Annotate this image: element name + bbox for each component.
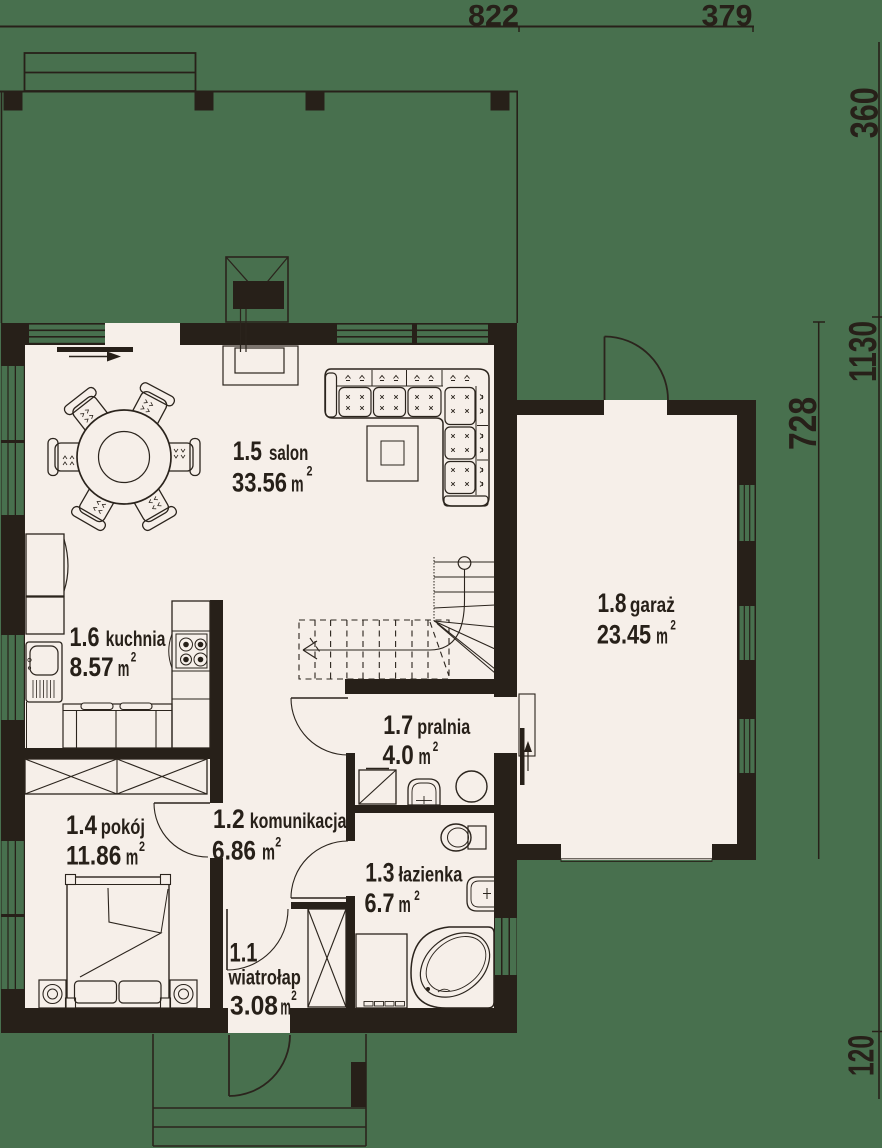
svg-text:pralnia: pralnia — [417, 715, 471, 739]
svg-text:1.2: 1.2 — [213, 804, 245, 834]
svg-text:1.1: 1.1 — [230, 938, 258, 968]
svg-text:pokój: pokój — [101, 815, 145, 839]
svg-text:m: m — [280, 995, 291, 1020]
svg-text:379: 379 — [702, 0, 753, 33]
svg-text:2: 2 — [131, 650, 137, 665]
svg-text:4.0: 4.0 — [383, 740, 414, 770]
svg-text:2: 2 — [307, 464, 313, 479]
svg-text:23.45: 23.45 — [597, 620, 651, 650]
svg-text:m: m — [656, 624, 668, 649]
svg-text:m: m — [399, 892, 411, 917]
svg-text:8.57: 8.57 — [70, 652, 114, 682]
svg-text:1.8: 1.8 — [598, 588, 627, 618]
svg-text:1.7: 1.7 — [383, 710, 413, 740]
svg-text:garaż: garaż — [630, 593, 675, 617]
svg-text:1.4: 1.4 — [66, 810, 97, 840]
svg-text:m: m — [126, 845, 139, 870]
svg-text:2: 2 — [433, 739, 439, 754]
svg-text:1.5: 1.5 — [233, 436, 262, 466]
svg-text:m: m — [262, 840, 275, 865]
svg-text:3.08: 3.08 — [230, 991, 278, 1021]
svg-text:2: 2 — [275, 835, 281, 850]
svg-text:łazienka: łazienka — [399, 863, 464, 887]
svg-text:6.86: 6.86 — [212, 836, 256, 866]
svg-text:120: 120 — [841, 1035, 882, 1076]
svg-text:822: 822 — [468, 0, 519, 33]
svg-text:1130: 1130 — [842, 321, 882, 382]
svg-text:salon: salon — [269, 441, 308, 465]
svg-text:kuchnia: kuchnia — [106, 627, 167, 651]
svg-text:6.7: 6.7 — [365, 888, 395, 918]
svg-text:m: m — [419, 744, 431, 769]
svg-text:728: 728 — [782, 397, 825, 450]
svg-text:11.86: 11.86 — [66, 841, 121, 871]
svg-text:m: m — [118, 656, 130, 681]
svg-text:2: 2 — [139, 839, 145, 854]
svg-text:1.3: 1.3 — [365, 858, 394, 888]
svg-text:komunikacja: komunikacja — [250, 809, 347, 833]
svg-text:2: 2 — [670, 618, 676, 633]
svg-text:33.56: 33.56 — [232, 468, 287, 498]
svg-text:wiatrołap: wiatrołap — [228, 966, 301, 990]
svg-text:1.6: 1.6 — [70, 622, 100, 652]
svg-text:2: 2 — [291, 988, 297, 1003]
svg-text:m: m — [291, 472, 304, 497]
svg-text:360: 360 — [844, 87, 882, 138]
svg-text:2: 2 — [414, 888, 420, 903]
